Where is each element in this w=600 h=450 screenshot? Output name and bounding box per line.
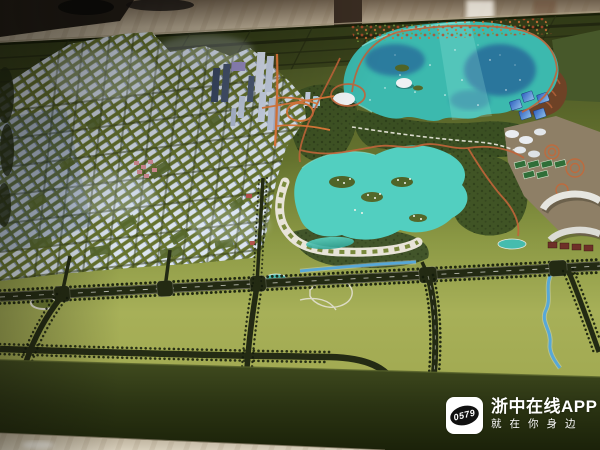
scene-svg	[0, 0, 600, 450]
app-logo: 0579	[446, 397, 483, 434]
vignette-top-left	[0, 0, 600, 450]
watermark-text: 浙中在线APP 就在你身边	[491, 397, 597, 431]
app-name: 浙中在线APP	[491, 397, 597, 417]
watermark: 0579 浙中在线APP 就在你身边	[446, 397, 597, 434]
app-tagline: 就在你身边	[491, 418, 597, 431]
logo-fish-oval-icon: 0579	[448, 403, 481, 428]
logo-text: 0579	[453, 408, 477, 422]
photo-city-planning-model: 0579 浙中在线APP 就在你身边	[0, 0, 600, 450]
